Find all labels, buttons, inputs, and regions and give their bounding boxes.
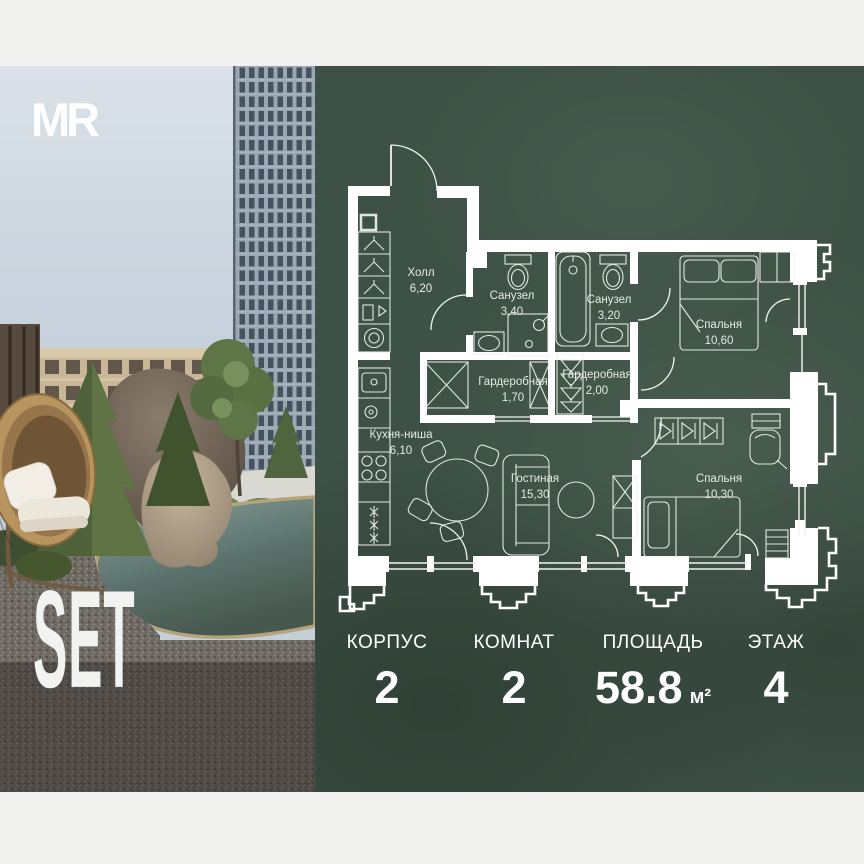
room-label: Спальня10,30 [696,471,742,503]
hall-closet-icon [358,215,390,352]
room-label: Санузел3,20 [587,292,632,324]
room-label: Гостиная15,30 [511,471,559,503]
brand-logo: MR [31,96,96,143]
room-label: Холл6,20 [407,265,434,297]
stat-building: КОРПУС 2 [347,632,428,710]
room-label: Гардеробная1,70 [478,374,548,406]
listing-card: MR SET [0,0,864,864]
bedroom1-closet-icon [760,252,794,282]
windows [389,285,805,569]
desk-chair-icon [750,414,787,469]
room-label: Кухня-ниша6,10 [369,427,432,459]
project-name: SET [33,584,135,695]
room-label: Спальня10,60 [696,317,742,349]
toilet-icon [600,255,626,264]
room-label: Санузел3,40 [490,288,535,320]
pouf-icon [558,482,594,518]
stat-area: ПЛОЩАДЬ 58.8м² [595,632,711,710]
entrance-door-arc [391,145,437,191]
toilet-icon [505,255,531,264]
washer-icon [365,329,384,348]
room-label: Гардеробная2,00 [562,367,632,399]
bedroom2-wardrobe-icon [655,418,723,444]
single-bed-icon [644,497,740,557]
dresser-icon [766,530,788,558]
sofa-icon [503,455,549,555]
stat-floor: ЭТАЖ 4 [748,632,805,710]
stat-rooms: КОМНАТ 2 [474,632,555,710]
